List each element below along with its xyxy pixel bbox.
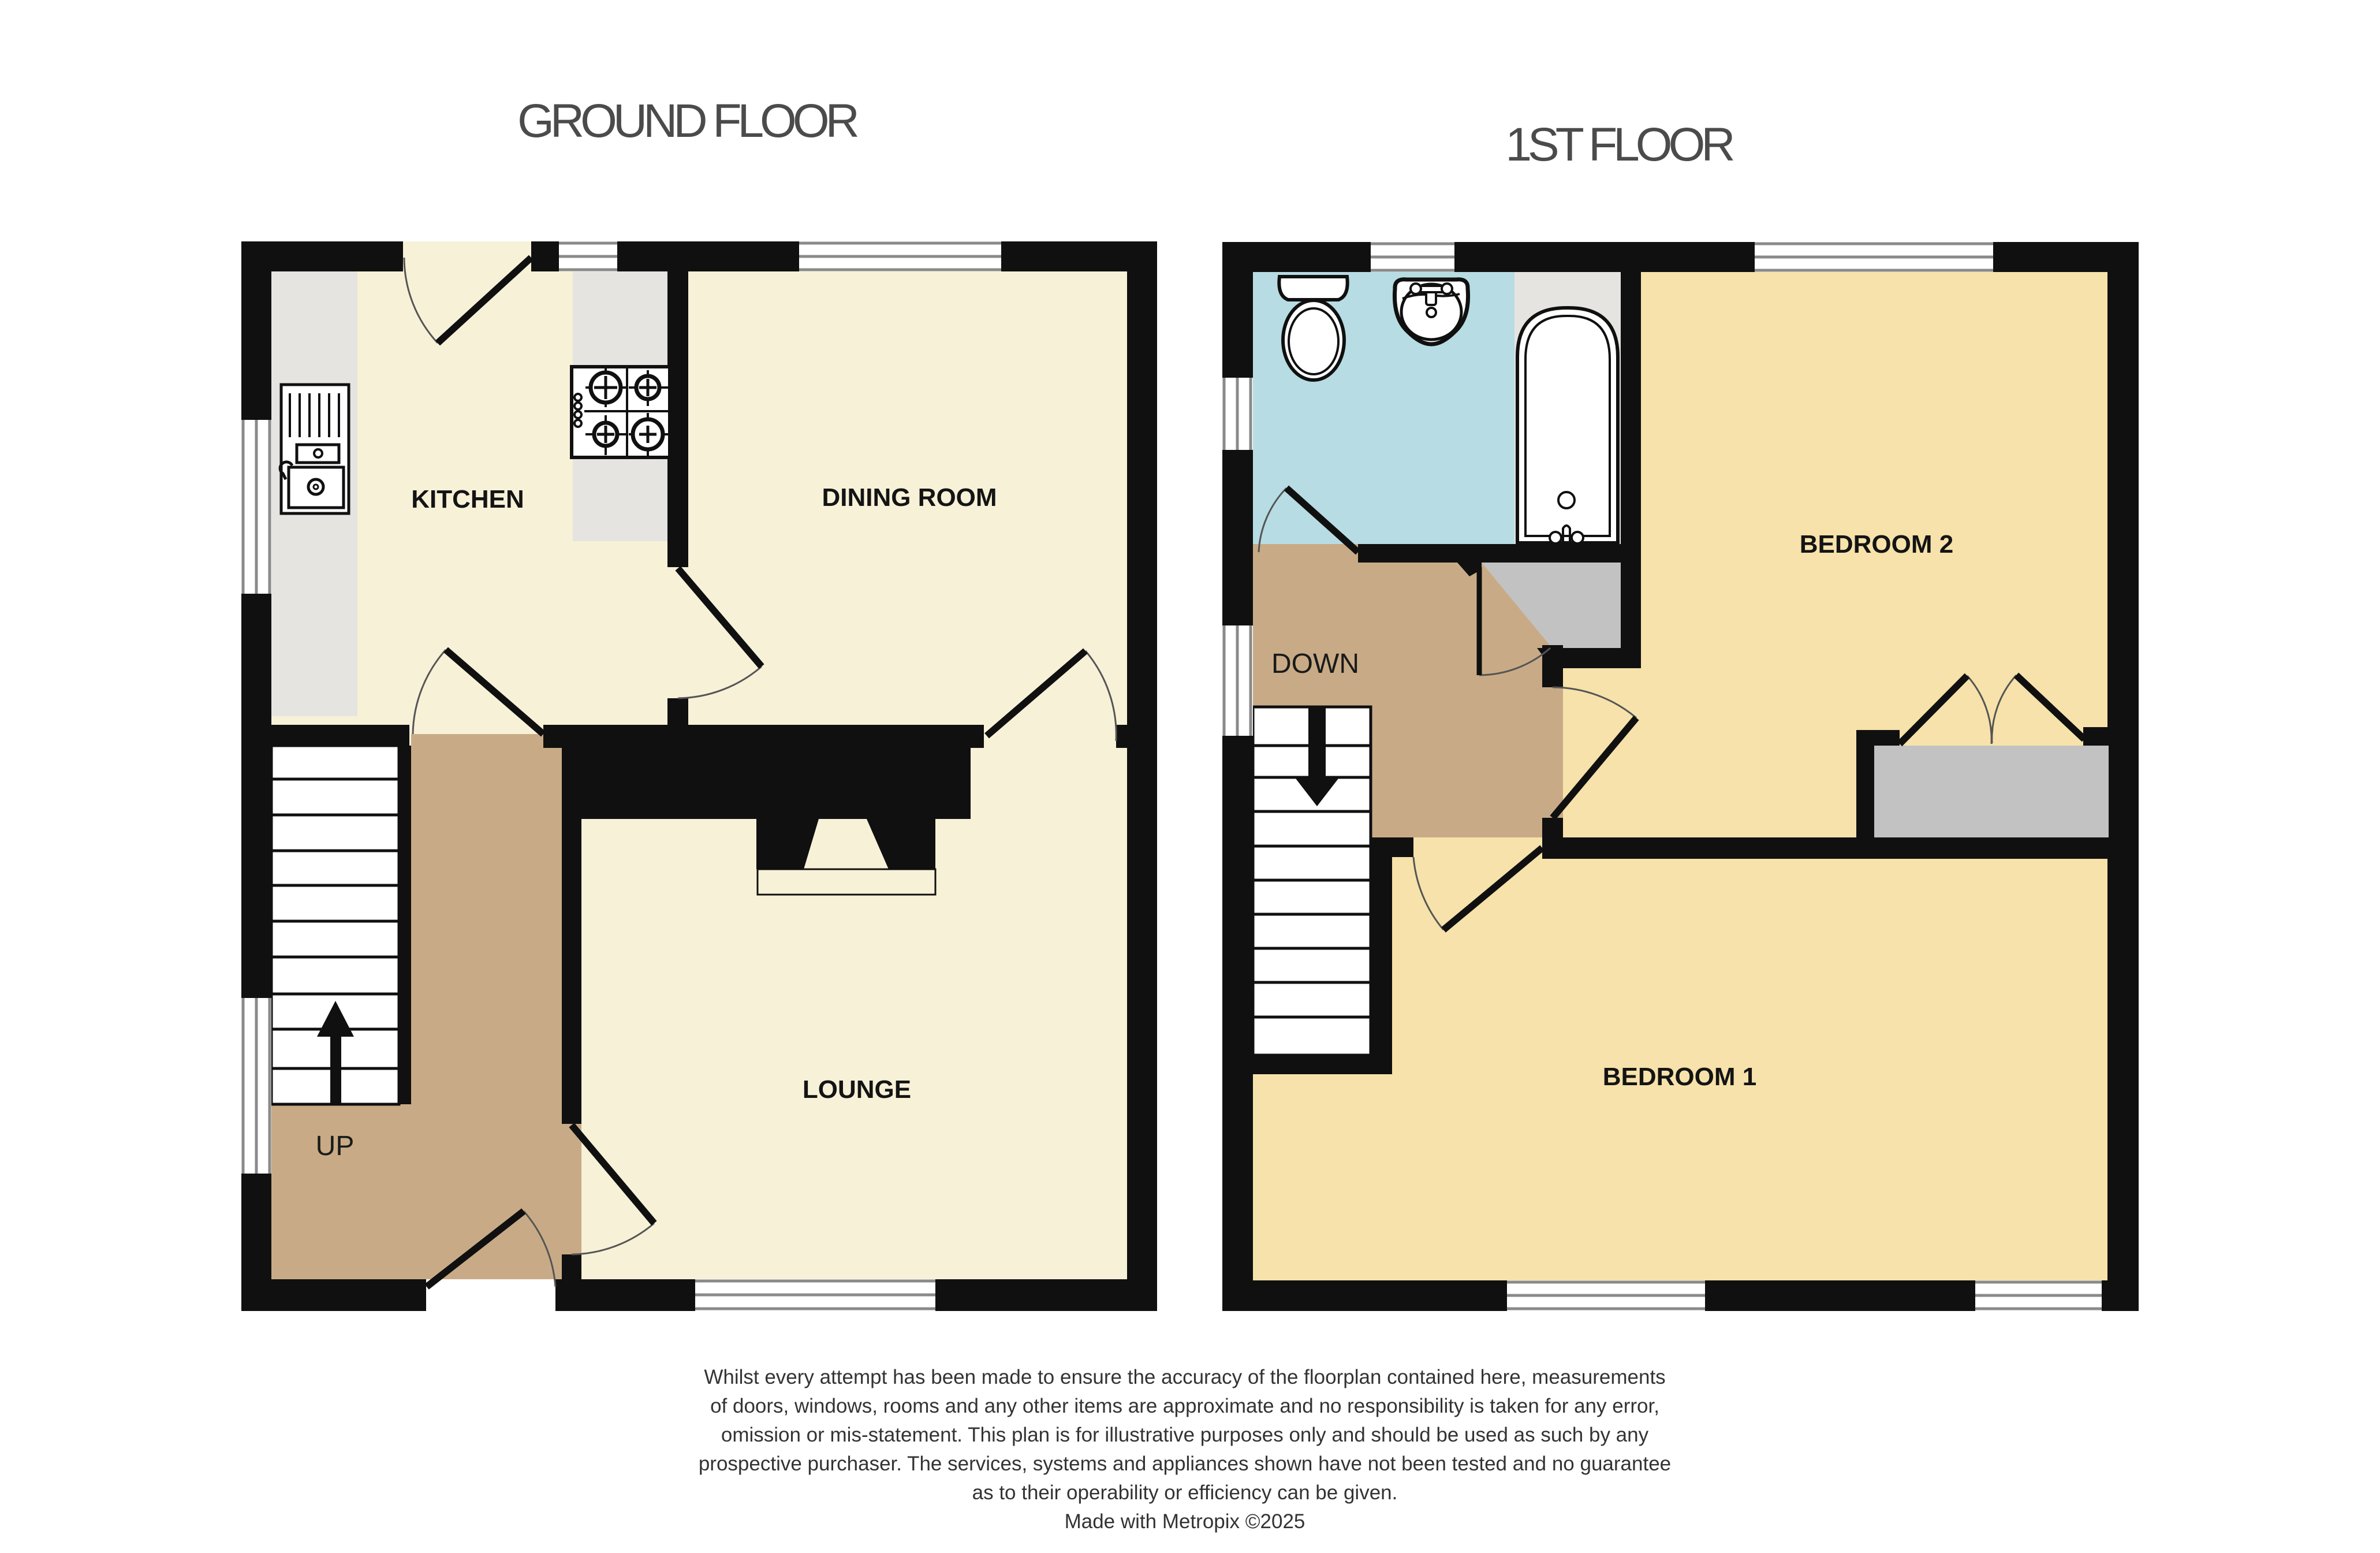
svg-text:Whilst every attempt has been: Whilst every attempt has been made to en… bbox=[704, 1366, 1665, 1388]
svg-text:of doors, windows, rooms and a: of doors, windows, rooms and any other i… bbox=[710, 1395, 1659, 1417]
svg-text:DOWN: DOWN bbox=[1271, 649, 1359, 679]
svg-text:BEDROOM 1: BEDROOM 1 bbox=[1603, 1063, 1756, 1091]
svg-text:DINING ROOM: DINING ROOM bbox=[822, 483, 997, 512]
svg-text:LOUNGE: LOUNGE bbox=[803, 1075, 911, 1104]
svg-text:1ST FLOOR: 1ST FLOOR bbox=[1505, 118, 1733, 171]
svg-text:prospective purchaser. The ser: prospective purchaser. The services, sys… bbox=[699, 1453, 1671, 1475]
svg-text:KITCHEN: KITCHEN bbox=[411, 485, 524, 513]
svg-text:GROUND FLOOR: GROUND FLOOR bbox=[517, 95, 857, 147]
svg-text:BEDROOM 2: BEDROOM 2 bbox=[1800, 530, 1953, 558]
svg-text:as to their operability or eff: as to their operability or efficiency ca… bbox=[972, 1481, 1398, 1504]
svg-text:Made with Metropix ©2025: Made with Metropix ©2025 bbox=[1065, 1510, 1305, 1533]
svg-text:omission or mis-statement. Thi: omission or mis-statement. This plan is … bbox=[721, 1424, 1649, 1446]
svg-text:UP: UP bbox=[316, 1131, 355, 1161]
